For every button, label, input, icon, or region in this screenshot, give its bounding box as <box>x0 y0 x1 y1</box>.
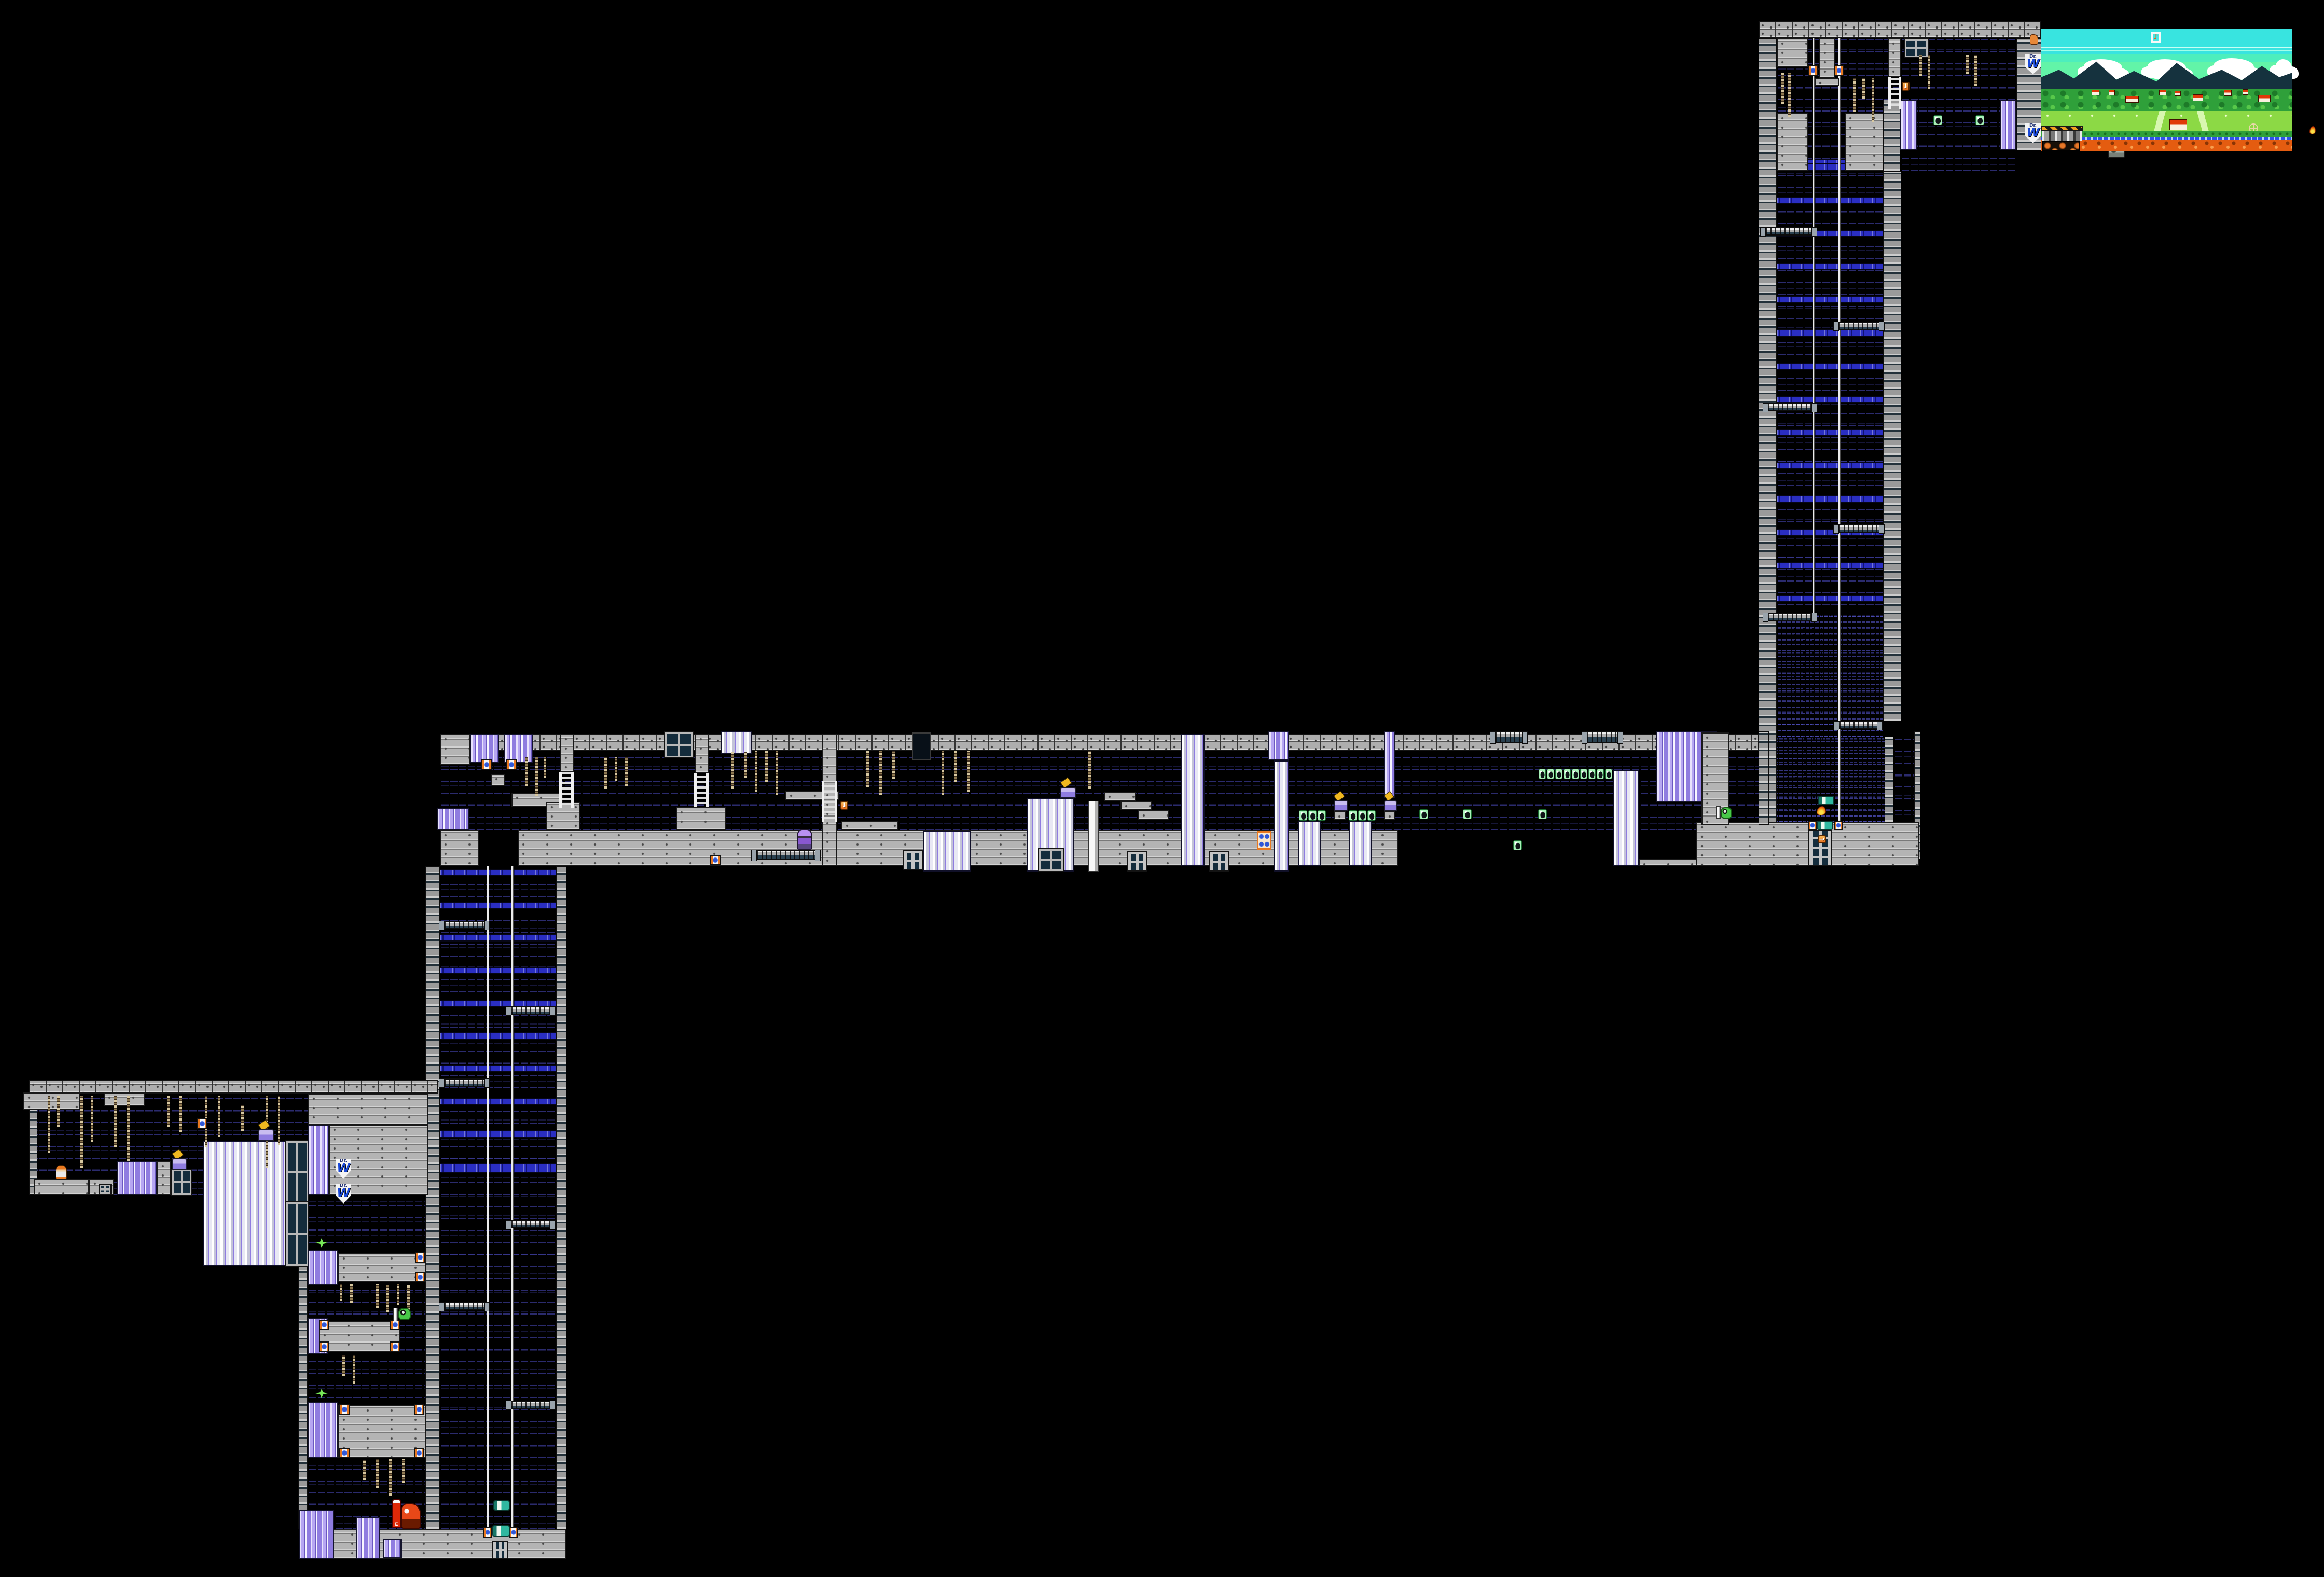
hanging-pillar <box>1819 38 1835 78</box>
village-house <box>2175 91 2181 96</box>
egg-block <box>1564 769 1571 779</box>
junction-right-wall <box>1885 737 1893 822</box>
pillar <box>560 734 574 772</box>
corridor-ceiling <box>440 734 1759 751</box>
egg-block-row <box>1298 810 1326 821</box>
circuit-slab <box>308 1250 338 1285</box>
rope-platform <box>1834 322 1884 330</box>
ledge-row-2 <box>319 1321 400 1352</box>
silver-column <box>1298 821 1321 866</box>
bottom-floor <box>299 1529 566 1559</box>
rope-lift <box>1808 65 1818 76</box>
rope-platform <box>440 1302 489 1310</box>
chain <box>776 751 778 795</box>
circuit-slab <box>437 808 469 830</box>
village-house <box>2243 89 2248 95</box>
silver-column <box>1274 760 1289 872</box>
chain <box>755 751 757 792</box>
girder <box>1777 429 1883 436</box>
chain <box>127 1096 130 1161</box>
bottom-room-left-wall <box>298 1230 308 1529</box>
chain <box>407 1285 410 1310</box>
rope-platform <box>1835 721 1882 729</box>
rope-lift <box>481 759 492 770</box>
chain <box>744 752 747 778</box>
outdoor-start-screen: ♪ <box>2041 29 2292 151</box>
bridge-block <box>491 774 505 786</box>
ledge-block <box>23 1092 80 1110</box>
lift-rope <box>511 866 513 1529</box>
rope-lift <box>1808 821 1817 830</box>
circuit-column <box>1384 731 1395 798</box>
double-door <box>903 850 923 870</box>
egg-block <box>1367 810 1376 821</box>
chain <box>218 1096 220 1137</box>
white-pillar <box>1088 801 1099 872</box>
bridge-rail <box>2041 126 2083 131</box>
girder <box>1777 462 1883 469</box>
turret-pedestal <box>1384 811 1395 820</box>
right-shaft-left-wall <box>1759 38 1777 825</box>
ledge-slab <box>34 1179 89 1195</box>
route-arrow-right: → <box>1818 835 1826 843</box>
village-house <box>2125 96 2139 103</box>
egg-block-row <box>1348 810 1376 821</box>
step <box>1138 810 1169 820</box>
rope-lift <box>1834 821 1843 830</box>
egg-block <box>1308 810 1317 821</box>
village-house <box>2224 90 2232 96</box>
girder <box>1777 197 1883 204</box>
egg-block <box>1555 769 1562 779</box>
girder <box>1777 263 1883 270</box>
shelf <box>841 821 898 830</box>
chain <box>942 751 944 795</box>
chain <box>1872 78 1874 122</box>
ledge-rows <box>308 1094 428 1125</box>
rope-lift <box>319 1341 329 1352</box>
egg-block <box>1975 115 1984 125</box>
rope-lift <box>197 1118 208 1129</box>
ledge-row-3 <box>338 1405 426 1458</box>
silver-column <box>1181 734 1205 866</box>
wily-w-letter: W <box>2026 58 2039 70</box>
chain <box>179 1096 182 1132</box>
horse-sprite <box>2030 34 2038 45</box>
girder <box>440 869 556 876</box>
rope-lift <box>415 1272 425 1282</box>
frog-enemy <box>1721 807 1732 819</box>
circuit-stack <box>356 1517 380 1559</box>
left-shaft-interior <box>440 866 556 1529</box>
chain <box>353 1355 355 1384</box>
ledge-room-ceiling <box>29 1080 438 1094</box>
chain <box>241 1105 244 1131</box>
rope-platform <box>1764 613 1816 621</box>
step <box>1120 801 1152 810</box>
route-arrow-down: ↓ <box>840 801 848 810</box>
egg-block <box>1318 810 1326 821</box>
chain <box>1928 55 1930 89</box>
chain <box>1788 73 1791 117</box>
egg-block <box>1580 769 1587 779</box>
egg-block <box>1539 769 1546 779</box>
circuit-tower <box>2000 100 2016 150</box>
start-block <box>1777 38 1808 67</box>
village-house <box>2159 90 2166 95</box>
chain <box>57 1096 60 1127</box>
egg-block <box>1588 769 1596 779</box>
girder <box>440 1065 556 1072</box>
chain <box>397 1284 399 1305</box>
rope-platform <box>1764 403 1816 411</box>
silver-slab <box>721 731 752 754</box>
left-shaft-left-wall <box>425 866 440 1529</box>
chain <box>402 1459 405 1483</box>
circuit-tower <box>1900 100 1917 150</box>
robot-figure <box>56 1165 67 1179</box>
route-arrow-down: ↓ <box>1902 82 1910 91</box>
rope-platform <box>440 1078 489 1087</box>
pillar <box>695 734 709 773</box>
girder <box>440 1163 556 1173</box>
girder <box>1777 595 1883 602</box>
sniper-armor-enemy <box>797 829 812 850</box>
rope-platform <box>1761 227 1816 236</box>
chain <box>955 751 957 782</box>
level-map-screenshot: Dr.WDr.WDr.WDr.W↓↓→E ♪ <box>0 0 2324 1577</box>
chain <box>376 1459 379 1488</box>
girder <box>440 1032 556 1040</box>
rope-lift <box>390 1320 400 1330</box>
left-shaft-right-wall <box>556 866 566 1529</box>
ladder <box>1888 77 1901 109</box>
village-house <box>2092 90 2099 95</box>
rope-lift <box>509 1527 518 1538</box>
cannon-turret <box>172 1155 185 1170</box>
dense-texture <box>1769 737 1885 822</box>
slot-column <box>286 1141 308 1202</box>
rope-tower <box>470 734 499 763</box>
chain <box>340 1284 342 1301</box>
chain <box>91 1096 93 1142</box>
girder <box>440 967 556 974</box>
start-ceiling <box>1759 21 2041 38</box>
rope-lift <box>415 1252 425 1263</box>
stud-platform <box>752 850 820 860</box>
mid-wall-column <box>1883 100 1900 171</box>
girder <box>440 934 556 942</box>
chain <box>615 757 617 781</box>
girder <box>1777 562 1883 569</box>
window-door <box>172 1170 191 1195</box>
rope-lift <box>710 855 721 865</box>
red-robot-enemy <box>400 1503 421 1529</box>
pillar <box>1888 38 1901 77</box>
chain <box>731 752 734 789</box>
cloud <box>2276 59 2292 75</box>
village-house <box>2109 90 2115 95</box>
cannon-turret <box>258 1126 272 1141</box>
lift-rope <box>487 866 489 1529</box>
floor-tile <box>383 1539 402 1558</box>
egg-block <box>1349 810 1357 821</box>
wily-w-letter: W <box>337 1187 350 1199</box>
bridge-rock-wall <box>2042 141 2080 151</box>
wily-w-letter: W <box>337 1163 350 1174</box>
rope-lift <box>390 1341 400 1352</box>
step <box>1104 792 1136 801</box>
pillar-foot <box>1815 78 1839 86</box>
silver-column <box>1349 821 1372 866</box>
white-pillar <box>393 1308 398 1321</box>
double-door <box>1209 851 1229 872</box>
chain <box>1974 55 1977 86</box>
chain <box>1088 751 1091 789</box>
egg-block-row <box>1538 769 1613 779</box>
egg-block <box>1572 769 1579 779</box>
slot-column <box>286 1202 308 1266</box>
rope-lift <box>414 1404 424 1415</box>
ledge-block <box>104 1092 145 1106</box>
rope-tower <box>504 734 533 763</box>
double-door <box>1127 851 1147 872</box>
turret-pedestal <box>1334 811 1346 820</box>
circuit-stack <box>299 1510 334 1559</box>
chain <box>967 751 970 792</box>
junction-wall-column <box>1759 731 1769 825</box>
chain <box>363 1460 366 1480</box>
quad-device <box>1257 831 1271 850</box>
wall-window <box>100 1185 110 1194</box>
corridor-floor-left <box>440 830 479 866</box>
rope-lift <box>506 759 517 770</box>
chain <box>892 751 895 779</box>
girder <box>1777 363 1883 370</box>
egg-block <box>1547 769 1554 779</box>
village-house <box>2258 95 2271 102</box>
chain <box>167 1096 170 1127</box>
egg-block <box>1933 115 1942 125</box>
girder <box>440 1130 556 1138</box>
rope-lift <box>1834 65 1844 76</box>
cannon-turret <box>1060 783 1074 798</box>
white-pillar <box>1716 806 1721 819</box>
chain <box>525 757 528 786</box>
circuit-slab <box>1268 731 1289 760</box>
lift-rope <box>1813 38 1814 614</box>
rope-lift <box>414 1448 424 1458</box>
girder <box>1777 296 1883 303</box>
chain <box>386 1285 389 1312</box>
girder <box>1777 495 1883 503</box>
corridor-floor-ledge <box>1639 859 1698 866</box>
egg-block <box>1605 769 1612 779</box>
girder <box>440 902 556 909</box>
egg-block <box>1597 769 1604 779</box>
chain <box>389 1459 392 1496</box>
right-shaft-right-wall <box>1883 171 1901 721</box>
stud-platform <box>1491 731 1527 743</box>
item-flame <box>2309 126 2316 134</box>
chain <box>350 1284 353 1303</box>
chain <box>765 751 768 782</box>
egg-block <box>1299 810 1307 821</box>
wall-window <box>1905 39 1928 57</box>
egg-block <box>1463 809 1472 819</box>
chain <box>1919 55 1922 76</box>
chain <box>544 757 546 778</box>
teal-machine <box>492 1525 510 1537</box>
girder <box>440 1000 556 1007</box>
teal-machine <box>1818 796 1834 805</box>
ledge-row-1 <box>338 1253 426 1282</box>
castle-map-canvas: Dr.WDr.WDr.WDr.W↓↓→E <box>0 0 2324 1577</box>
music-note-marker: ♪ <box>2151 32 2161 43</box>
chain <box>1862 78 1865 99</box>
chain <box>604 757 607 789</box>
chain <box>1853 78 1856 112</box>
energy-tank: E <box>392 1499 401 1528</box>
rope-platform <box>507 1006 555 1015</box>
cannon-turret <box>1334 797 1346 811</box>
egg-block <box>1419 809 1428 819</box>
rope-platform <box>507 1220 555 1228</box>
chain <box>625 757 628 786</box>
chain <box>48 1096 50 1153</box>
rope-lift <box>339 1448 350 1458</box>
egg-block <box>1358 810 1366 821</box>
rope-lift <box>339 1404 350 1415</box>
rope-platform <box>1834 524 1884 533</box>
tree-band <box>2041 89 2292 114</box>
chain <box>80 1096 83 1168</box>
village-house <box>2193 94 2203 101</box>
shaft-mouth-left <box>1777 113 1808 171</box>
ceiling-opening <box>912 732 931 760</box>
chain <box>278 1096 280 1145</box>
rope-lift <box>483 1527 492 1538</box>
chain <box>535 757 538 796</box>
chain <box>1781 73 1784 104</box>
rope-platform <box>440 921 489 929</box>
chain <box>1966 55 1969 74</box>
floor-door <box>492 1541 508 1559</box>
silver-wall <box>923 831 971 872</box>
girder <box>1777 396 1883 403</box>
chain <box>866 751 869 787</box>
chain <box>879 751 882 795</box>
silver-complex <box>203 1141 286 1266</box>
wall-window <box>665 732 693 757</box>
shelf <box>676 807 726 830</box>
corridor-left-cap <box>440 734 470 765</box>
circuit-tower <box>117 1161 157 1195</box>
chain <box>114 1096 117 1147</box>
circuit-column <box>308 1125 329 1195</box>
dense-texture <box>1777 612 1883 737</box>
wall-window <box>1039 849 1063 871</box>
circuit-slab <box>308 1402 338 1458</box>
teal-machine <box>1817 821 1833 830</box>
silver-column <box>1613 770 1639 866</box>
corridor-interior <box>440 751 1759 830</box>
bridge-pillars <box>2042 131 2082 141</box>
rope-platform <box>507 1401 555 1409</box>
cannon-turret <box>1384 797 1395 811</box>
bolt-column <box>157 1161 171 1195</box>
chain <box>342 1355 345 1376</box>
egg-block <box>1538 809 1547 819</box>
wily-w-letter: W <box>2026 127 2039 139</box>
frog-enemy <box>398 1308 411 1320</box>
chain <box>376 1284 379 1308</box>
shaft-mouth-right <box>1845 113 1886 171</box>
lift-rope <box>1838 38 1840 822</box>
stud-platform <box>1583 731 1622 743</box>
ladder <box>822 781 837 822</box>
rope-lift <box>319 1320 329 1330</box>
field-house <box>2169 119 2187 130</box>
teal-machine <box>493 1500 510 1511</box>
item-flame <box>1817 806 1826 815</box>
girder <box>440 1098 556 1105</box>
ladder <box>694 773 709 807</box>
egg-block <box>1513 840 1522 850</box>
ladder <box>559 772 574 808</box>
girder <box>1777 329 1883 337</box>
